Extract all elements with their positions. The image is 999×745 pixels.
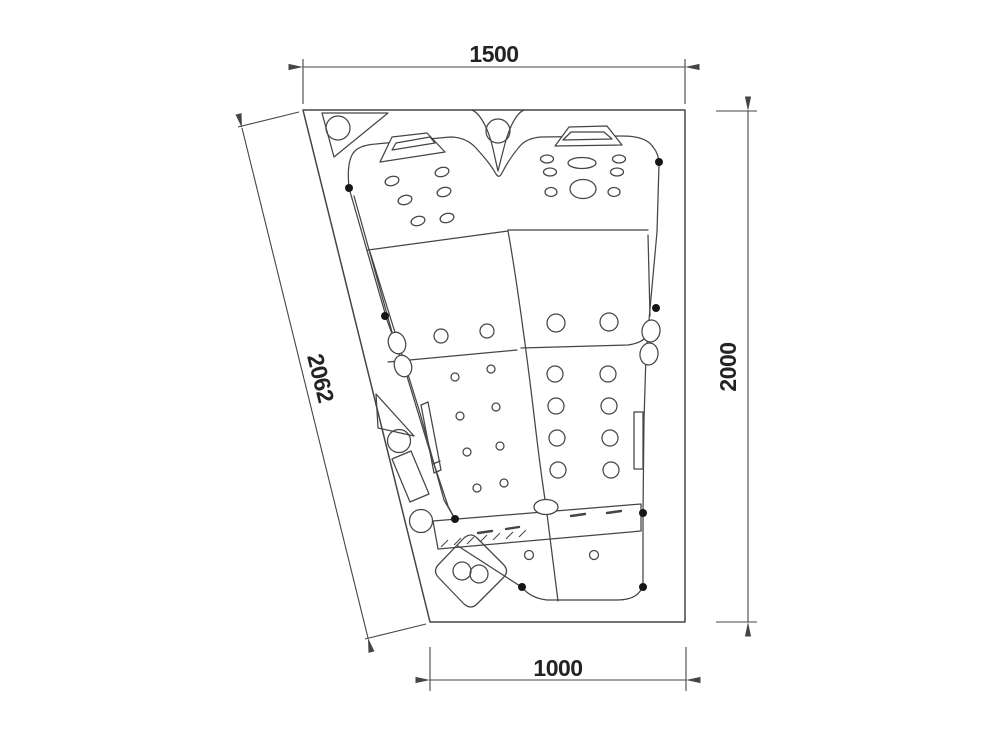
center-divider	[508, 231, 558, 601]
right-backrest-vents	[541, 155, 626, 199]
dimension-top-label: 1500	[469, 41, 518, 67]
strip-ellipse	[534, 500, 558, 515]
wall-edge-right	[648, 235, 650, 316]
backrest-edge-left	[368, 231, 508, 250]
dimension-line	[242, 128, 368, 638]
right-headrest	[555, 126, 622, 146]
grab-bar-left	[421, 402, 441, 473]
right-wall-jets	[639, 319, 662, 366]
dimension-bottom-label: 1000	[533, 655, 582, 681]
seat-line-right	[521, 334, 649, 348]
grab-bar-right	[634, 412, 643, 469]
drawing-canvas: 1500 2000 2062 1000	[0, 0, 999, 745]
dimension-diagonal-label: 2062	[302, 351, 339, 405]
corner-circle-center	[486, 119, 510, 143]
dimension-top: 1500	[303, 41, 685, 104]
dimension-bottom: 1000	[430, 647, 686, 691]
bathtub-plan-drawing: 1500 2000 2062 1000	[0, 0, 999, 745]
dimension-right: 2000	[715, 111, 757, 622]
dimension-diagonal: 2062	[238, 112, 426, 639]
right-seat-jets	[547, 313, 619, 478]
control-panel	[376, 394, 433, 533]
seat-edge-left	[370, 252, 455, 519]
tub-body	[303, 110, 685, 622]
panel-knob-lower	[410, 510, 433, 533]
overflow-strip	[433, 500, 641, 550]
dimension-right-label: 2000	[715, 342, 741, 391]
footwell	[458, 546, 643, 600]
panel-display	[392, 451, 429, 502]
left-headrest	[380, 133, 445, 162]
left-backrest-vents	[384, 166, 455, 227]
corner-v-center	[472, 110, 524, 171]
wall-edge-left	[354, 196, 392, 332]
left-seat-jets	[434, 324, 508, 492]
mount-dots	[345, 158, 663, 591]
corner-circle-left	[326, 116, 350, 140]
